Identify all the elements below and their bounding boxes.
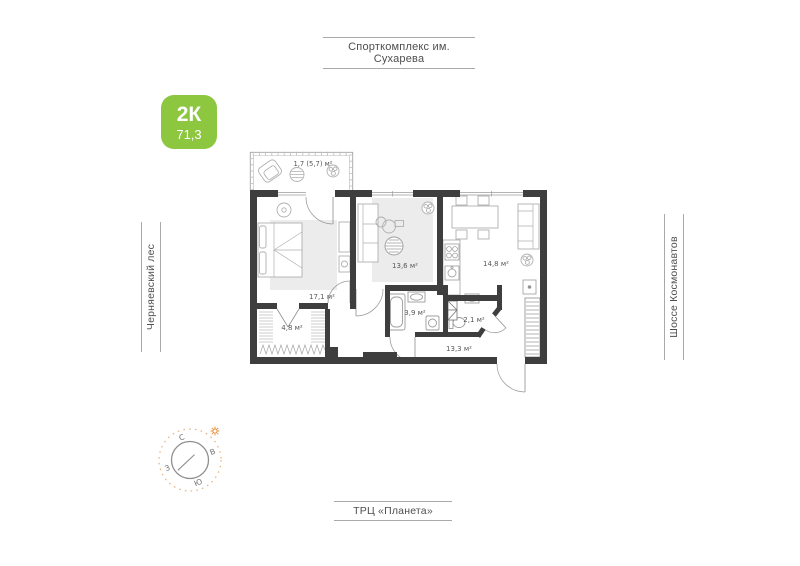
round-table-icon (385, 237, 403, 255)
compass-east-label: В (209, 447, 217, 457)
landmark-label-top: Спорткомплекс им. Сухарева (323, 37, 475, 69)
speaker-box-icon (523, 280, 536, 294)
floor-plan-svg: 1,7 (5,7) м² 17,1 м² 13,6 м² 14,8 м² 4,8… (240, 138, 560, 408)
sun-icon (211, 427, 220, 436)
plant-icon (422, 202, 434, 214)
floorplan-page: Спорткомплекс им. Сухарева ТРЦ «Планета»… (0, 0, 800, 566)
landmark-label-right: Шоссе Космонавтов (664, 214, 684, 360)
kitchen-sink-icon (445, 266, 459, 280)
bed-icon (258, 223, 302, 277)
compass-circle (172, 442, 209, 479)
room-area-label-bathroom: 3,9 м² (404, 309, 426, 317)
plant-icon (521, 254, 533, 266)
armchair-icon (257, 158, 283, 183)
room-area-label-hallway: 13,3 м² (446, 345, 472, 353)
room-area-label-kitchen: 14,8 м² (483, 260, 509, 268)
room-area-label-wc: 2,1 м² (463, 316, 485, 324)
sofa-icon (358, 204, 378, 262)
room-area-label-balcony: 1,7 (5,7) м² (293, 160, 332, 168)
compass-needle (178, 455, 195, 471)
dining-table-icon (452, 196, 498, 239)
compass-north-label: С (178, 432, 186, 442)
room-area-label-wardrobe: 4,8 м² (281, 324, 303, 332)
stove-icon (445, 244, 459, 260)
bathtub-icon (388, 294, 405, 330)
plan-type-badge: 2К 71,3 (161, 95, 217, 149)
kitchen-sofa-icon (518, 204, 539, 249)
balcony (250, 152, 352, 190)
dresser-icon (339, 222, 350, 272)
balcony-table-icon (290, 168, 304, 182)
duct-box-icon (448, 301, 457, 320)
washer-icon (426, 316, 439, 330)
bedside-table-icon (277, 203, 291, 217)
room-area-label-living: 13,6 м² (392, 262, 418, 270)
closet-icon (525, 298, 540, 357)
compass-dotted-ring (159, 429, 221, 491)
badge-rooms-label: 2К (161, 104, 217, 125)
room-area-label-bedroom: 17,1 м² (309, 293, 335, 301)
bathroom-sink-icon (408, 292, 425, 302)
entrance-door-arc (497, 364, 525, 392)
wardrobe-hatching (259, 312, 325, 354)
landmark-label-left: Черняевский лес (141, 222, 161, 352)
compass-west-label: З (163, 463, 171, 473)
badge-area-label: 71,3 (161, 128, 217, 141)
compass-south-label: Ю (193, 477, 204, 488)
landmark-label-bottom: ТРЦ «Планета» (334, 501, 452, 521)
compass: С В Ю З (150, 418, 234, 502)
